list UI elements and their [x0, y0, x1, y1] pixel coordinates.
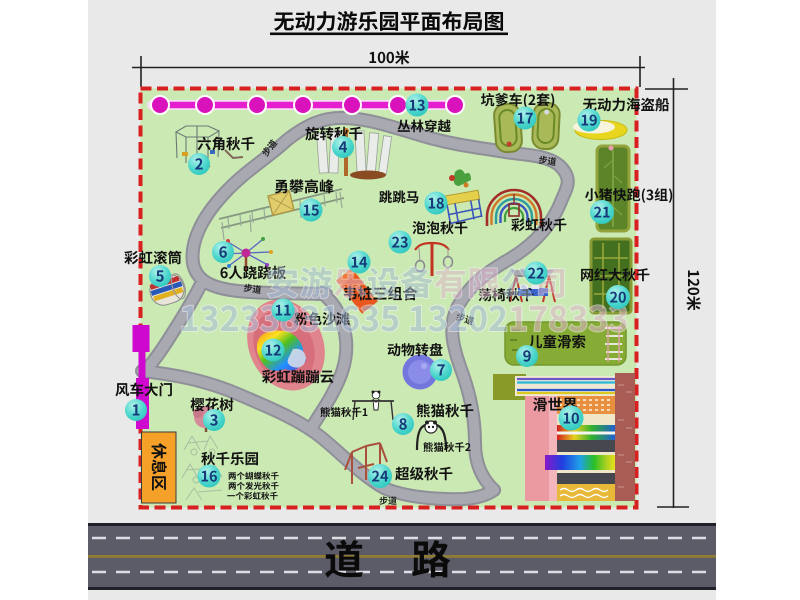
- svg-text:18: 18: [427, 193, 444, 214]
- svg-text:丛林穿越: 丛林穿越: [397, 115, 451, 135]
- svg-text:16: 16: [200, 466, 217, 487]
- svg-text:休息区: 休息区: [148, 443, 172, 491]
- svg-text:23: 23: [391, 232, 408, 253]
- svg-text:14: 14: [350, 252, 368, 273]
- svg-text:道路: 道路: [324, 528, 498, 586]
- svg-text:泡泡秋千: 泡泡秋千: [412, 218, 468, 238]
- svg-text:22: 22: [527, 263, 544, 284]
- svg-text:15: 15: [302, 200, 319, 221]
- svg-text:9: 9: [523, 346, 532, 367]
- svg-text:10: 10: [562, 408, 579, 429]
- svg-text:11: 11: [274, 300, 291, 321]
- svg-text:13: 13: [408, 95, 425, 116]
- svg-text:17: 17: [516, 108, 533, 129]
- svg-text:7: 7: [437, 360, 446, 381]
- svg-text:4: 4: [339, 137, 348, 158]
- svg-text:1: 1: [132, 400, 141, 421]
- svg-text:熊猫秋千: 熊猫秋千: [416, 400, 474, 421]
- svg-text:六角秋千: 六角秋千: [197, 133, 255, 154]
- svg-text:彩虹蹦蹦云: 彩虹蹦蹦云: [262, 366, 335, 387]
- svg-text:一个彩虹秋千: 一个彩虹秋千: [227, 490, 279, 502]
- svg-text:120米: 120米: [683, 269, 704, 311]
- svg-text:19: 19: [580, 110, 597, 131]
- svg-text:熊猫秋千1: 熊猫秋千1: [320, 405, 368, 420]
- svg-text:12: 12: [264, 340, 281, 361]
- svg-text:彩虹滚筒: 彩虹滚筒: [124, 247, 182, 268]
- svg-text:熊猫秋千2: 熊猫秋千2: [423, 440, 471, 455]
- svg-text:步道: 步道: [379, 494, 397, 507]
- svg-text:3: 3: [210, 410, 219, 431]
- svg-text:动物转盘: 动物转盘: [387, 340, 443, 360]
- svg-text:彩虹秋千: 彩虹秋千: [511, 215, 567, 235]
- svg-text:风车大门: 风车大门: [115, 379, 173, 400]
- svg-text:5: 5: [156, 266, 165, 287]
- svg-text:超级秋千: 超级秋千: [395, 463, 453, 484]
- svg-text:步道: 步道: [538, 153, 558, 168]
- svg-text:13233831635 13202178333: 13233831635 13202178333: [179, 292, 628, 341]
- svg-text:6: 6: [219, 242, 228, 263]
- svg-text:2: 2: [195, 154, 204, 175]
- svg-text:20: 20: [609, 287, 626, 308]
- svg-text:21: 21: [593, 202, 610, 223]
- svg-text:无动力游乐园平面布局图: 无动力游乐园平面布局图: [274, 6, 505, 36]
- svg-text:24: 24: [371, 466, 389, 487]
- svg-text:8: 8: [399, 414, 408, 435]
- svg-text:网红大秋千: 网红大秋千: [580, 265, 650, 285]
- svg-text:勇攀高峰: 勇攀高峰: [274, 176, 334, 197]
- svg-text:100米: 100米: [368, 47, 410, 68]
- svg-text:跳跳马: 跳跳马: [379, 186, 420, 206]
